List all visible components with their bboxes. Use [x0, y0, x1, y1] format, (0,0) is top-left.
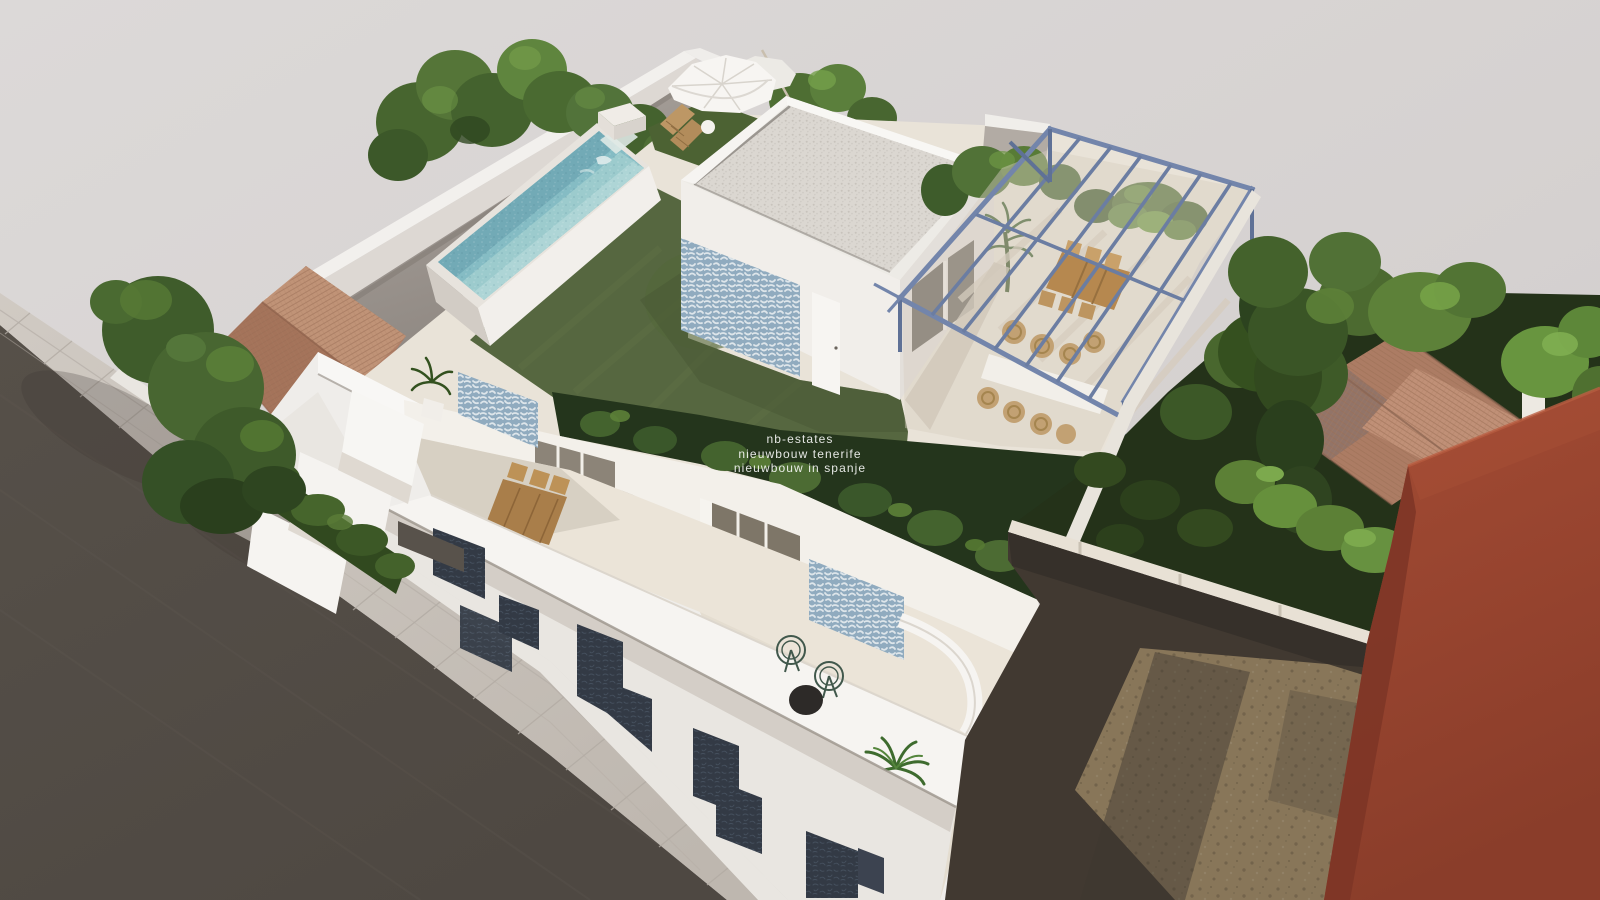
svg-text:nb-estates: nb-estates — [766, 432, 833, 446]
svg-text:nieuwbouw in spanje: nieuwbouw in spanje — [734, 461, 866, 475]
svg-text:nieuwbouw tenerife: nieuwbouw tenerife — [738, 447, 861, 461]
